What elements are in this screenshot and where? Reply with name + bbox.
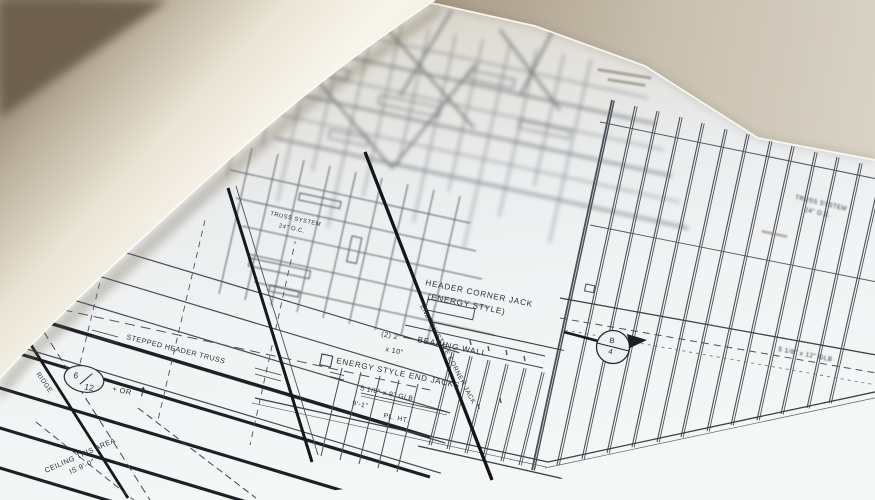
tick-mark — [478, 404, 479, 409]
tick-mark — [500, 398, 501, 403]
blueprint-photo: HEADER CORNER JACK (ENERGY STYLE) BEARIN… — [0, 0, 875, 500]
tick-mark — [488, 346, 489, 351]
tick-mark — [470, 340, 471, 345]
tick-mark — [506, 350, 507, 355]
tick-mark — [524, 356, 525, 361]
blueprint-photo-canvas: HEADER CORNER JACK (ENERGY STYLE) BEARIN… — [0, 0, 875, 500]
